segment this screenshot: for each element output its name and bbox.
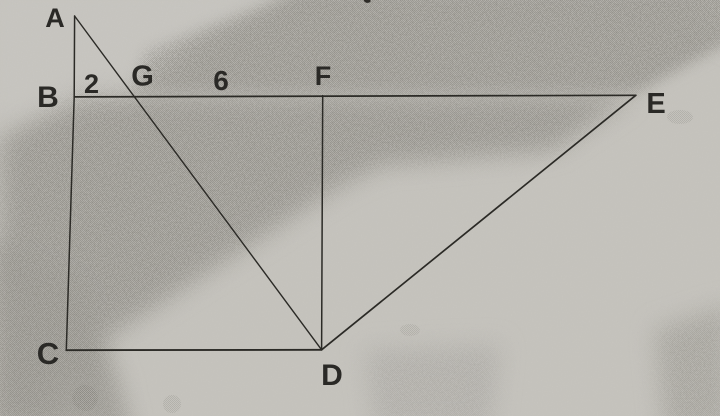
svg-text:F: F xyxy=(315,61,332,91)
svg-text:C: C xyxy=(37,336,59,371)
svg-text:G: G xyxy=(131,61,154,93)
svg-text:A: A xyxy=(45,3,65,33)
svg-text:6: 6 xyxy=(213,65,229,96)
svg-text:2: 2 xyxy=(84,69,99,99)
svg-text:B: B xyxy=(37,81,59,114)
svg-text:D: D xyxy=(321,359,343,392)
svg-text:E: E xyxy=(646,88,665,120)
